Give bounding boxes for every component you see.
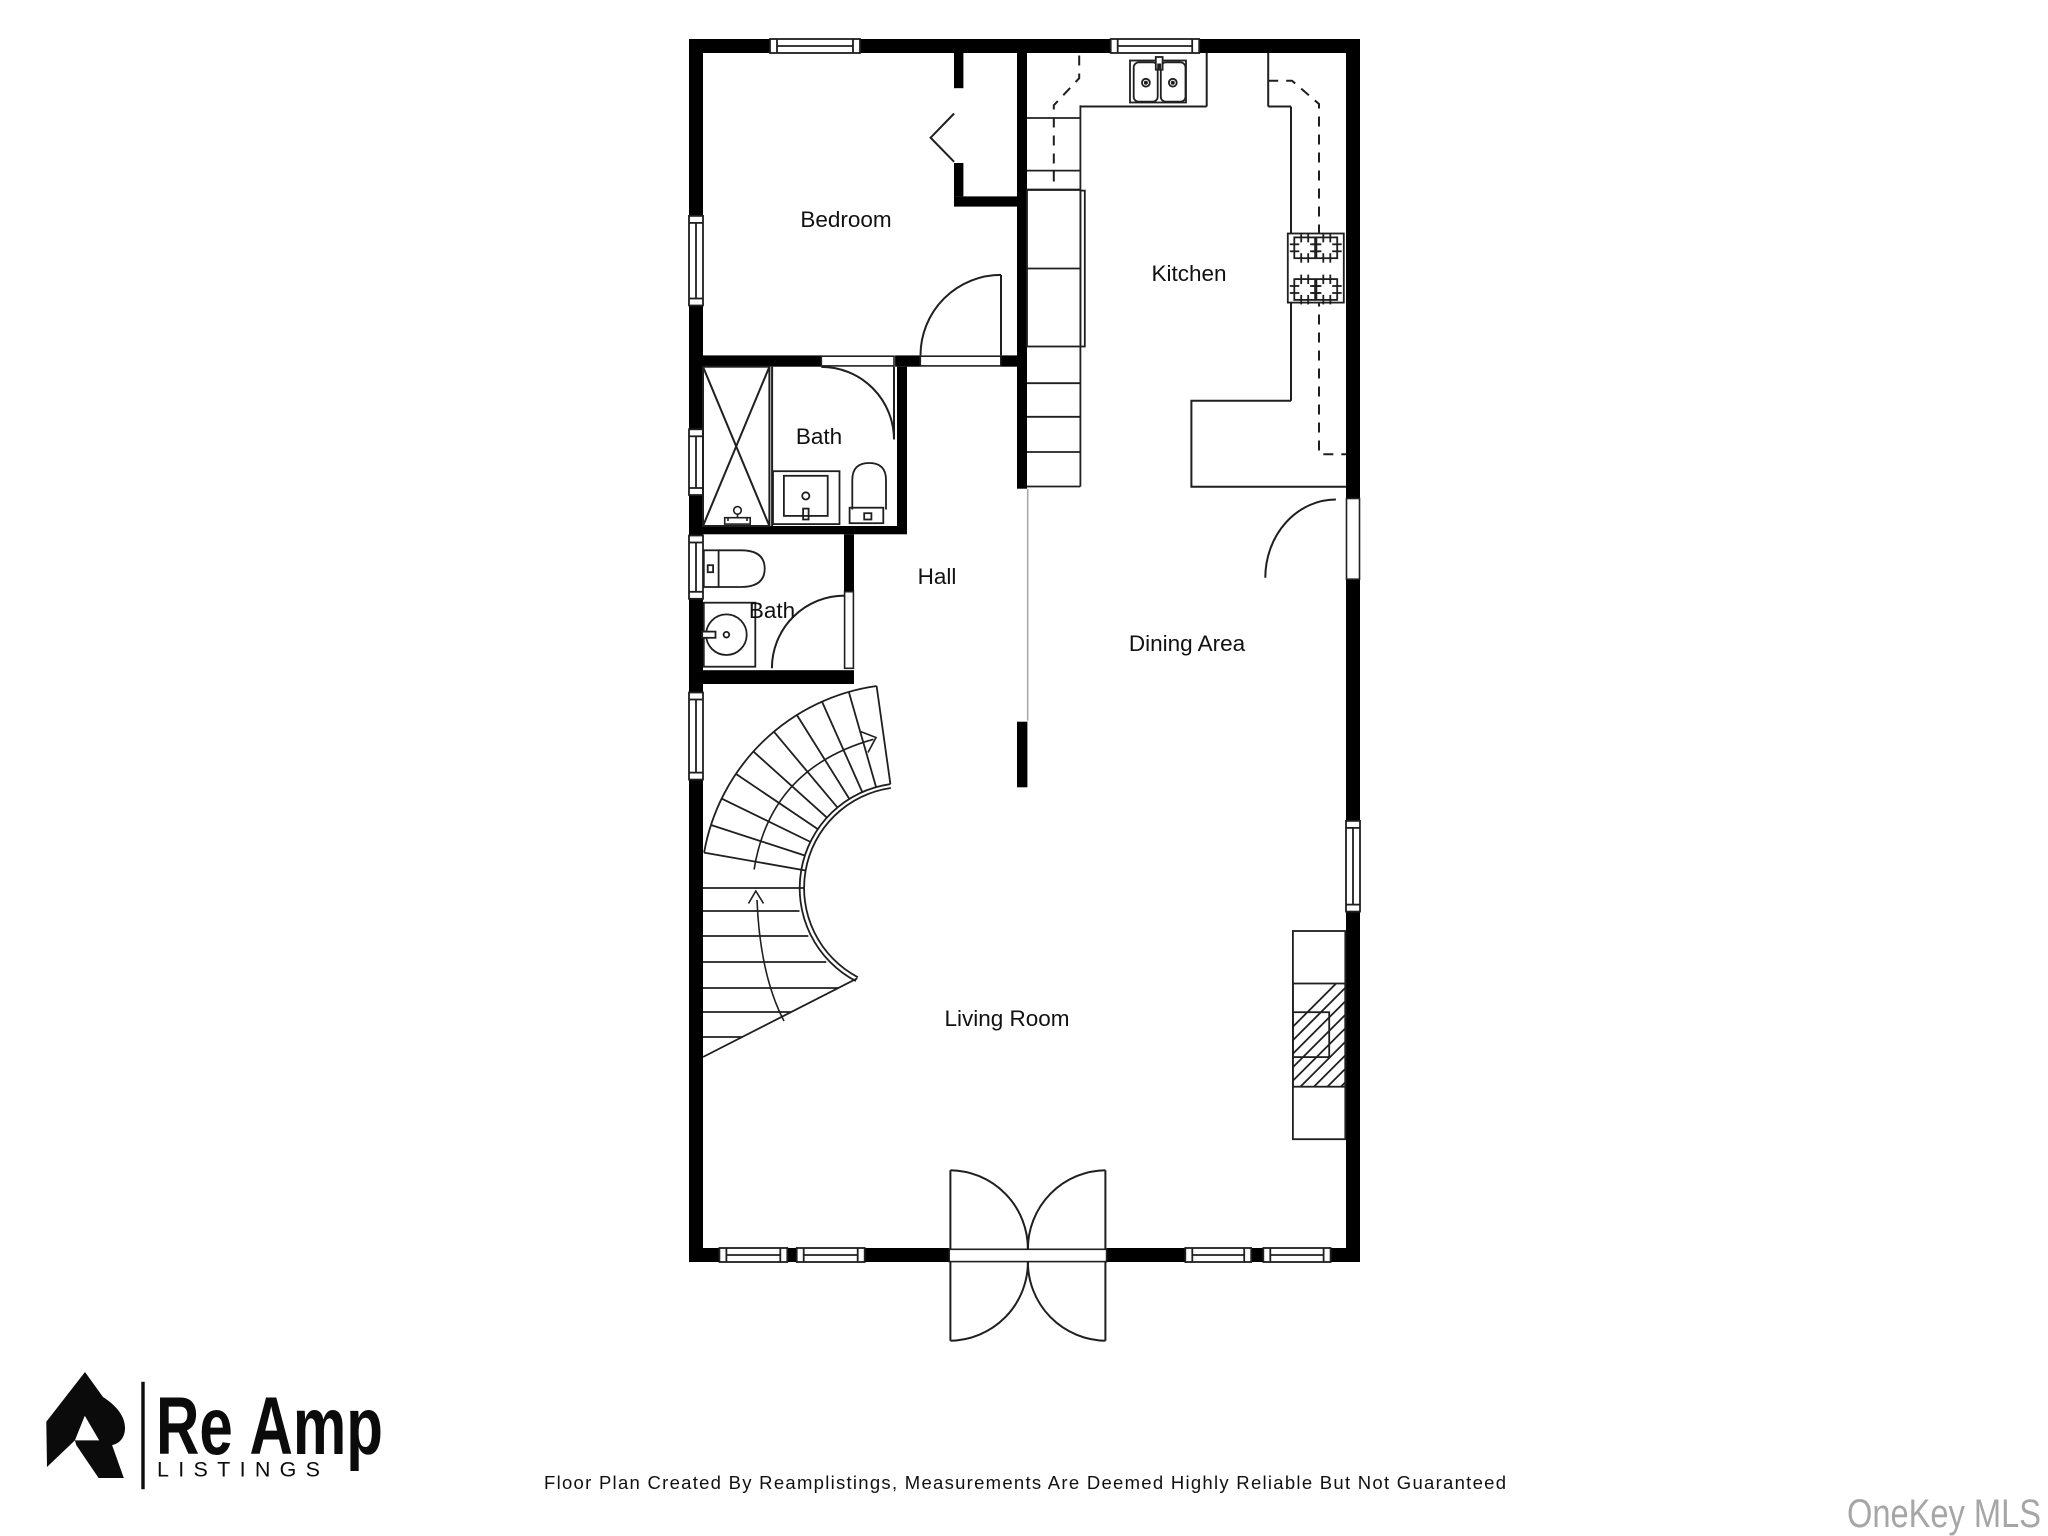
svg-text:Bath: Bath — [749, 598, 795, 623]
svg-text:Living Room: Living Room — [944, 1006, 1069, 1031]
svg-text:Hall: Hall — [918, 564, 957, 589]
svg-text:Bath: Bath — [796, 424, 842, 449]
svg-text:Dining Area: Dining Area — [1129, 631, 1246, 656]
svg-text:Floor Plan Created By Reamplis: Floor Plan Created By Reamplistings, Mea… — [544, 1472, 1506, 1493]
svg-text:Kitchen: Kitchen — [1151, 261, 1226, 286]
svg-text:OneKey MLS: OneKey MLS — [1847, 1492, 2041, 1536]
svg-text:Bedroom: Bedroom — [800, 207, 891, 232]
